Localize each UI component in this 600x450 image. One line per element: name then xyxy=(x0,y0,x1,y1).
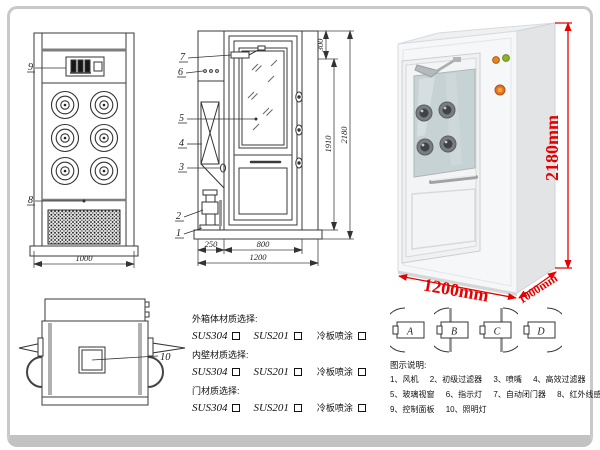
svg-text:6: 6 xyxy=(178,67,183,78)
material-checkbox[interactable] xyxy=(294,332,302,340)
legend-row: 1、风机 2、初级过滤器 3、喷嘴 4、高效过滤器 xyxy=(390,374,598,386)
legend-item: 10、照明灯 xyxy=(446,405,487,414)
nozzle-grid xyxy=(52,92,118,185)
nozzle-icon xyxy=(91,158,118,185)
dim-800: 800 xyxy=(257,239,271,249)
svg-text:5: 5 xyxy=(179,113,184,124)
photo-height-dim: 2180mm xyxy=(542,115,562,181)
legend-item: 7、自动闭门器 xyxy=(493,390,545,399)
door-option-d-icon: D xyxy=(522,302,562,358)
legend-item: 1、风机 xyxy=(390,375,418,384)
callout-10: 10 xyxy=(92,352,171,363)
door-glass-panel xyxy=(239,48,287,148)
material-section-title: 内壁材质选择: xyxy=(192,349,392,361)
top-view-drawing: 10 xyxy=(18,293,186,425)
door-assembly xyxy=(224,31,302,230)
dim-1200: 1200 xyxy=(250,252,268,262)
filter-box xyxy=(201,102,226,188)
nozzle-icon xyxy=(52,92,79,119)
dim-1910: 1910 xyxy=(323,135,333,153)
material-section-title: 外箱体材质选择: xyxy=(192,313,392,325)
indicator-lights-icon xyxy=(204,70,219,73)
material-section-title: 门材质选择: xyxy=(192,385,392,397)
legend-title: 图示说明: xyxy=(390,359,598,371)
material-checkbox[interactable] xyxy=(358,368,366,376)
material-checkbox[interactable] xyxy=(294,368,302,376)
svg-text:3: 3 xyxy=(178,162,184,173)
legend-item: 6、指示灯 xyxy=(446,390,482,399)
svg-text:2: 2 xyxy=(176,211,181,222)
material-checkbox[interactable] xyxy=(232,404,240,412)
side-view-drawing: 7 6 5 4 3 2 1 300 1910 2180 250 800 xyxy=(156,18,368,308)
material-option-label: SUS201 xyxy=(253,330,288,342)
material-checkbox[interactable] xyxy=(358,404,366,412)
air-shower-photo: 2180mm 1200mm 1000mm xyxy=(383,13,578,309)
legend-row: 5、玻璃视窗 6、指示灯 7、自动闭门器 8、红外线感应器 xyxy=(390,389,598,401)
dim-2180: 2180 xyxy=(339,126,349,144)
legend-item: 3、喷嘴 xyxy=(493,375,521,384)
front-view-drawing: 1000 9 8 xyxy=(25,30,157,272)
svg-text:D: D xyxy=(536,327,545,338)
material-option-label: SUS201 xyxy=(253,402,288,414)
front-width-dim-label: 1000 xyxy=(76,253,94,263)
svg-text:4: 4 xyxy=(179,138,184,149)
material-checkbox[interactable] xyxy=(294,404,302,412)
svg-text:1: 1 xyxy=(176,228,181,239)
door-option-b-icon: B xyxy=(434,302,474,358)
nozzle-icon xyxy=(52,158,79,185)
dim-250: 250 xyxy=(205,239,219,249)
material-option-label: SUS304 xyxy=(192,330,227,342)
material-option-label: 冷板喷涂 xyxy=(317,329,353,342)
legend-item: 8、红外线感应器 xyxy=(557,390,600,399)
svg-text:B: B xyxy=(451,327,457,338)
legend-item: 2、初级过滤器 xyxy=(430,375,482,384)
door-option-a-icon: A xyxy=(390,302,430,358)
control-panel xyxy=(66,57,104,76)
material-option-label: 冷板喷涂 xyxy=(317,401,353,414)
material-section-door: 门材质选择: SUS304 SUS201 冷板喷涂 xyxy=(192,385,392,414)
material-option-label: 冷板喷涂 xyxy=(317,365,353,378)
material-option-label: SUS304 xyxy=(192,366,227,378)
air-return-grille xyxy=(48,210,120,244)
legend-item: 5、玻璃视窗 xyxy=(390,390,434,399)
top-view-outline xyxy=(42,299,149,405)
material-option-label: SUS304 xyxy=(192,402,227,414)
legend-item: 4、高效过滤器 xyxy=(533,375,585,384)
svg-text:8: 8 xyxy=(28,195,33,206)
dim-300: 300 xyxy=(315,38,325,53)
nozzle-icon xyxy=(91,92,118,119)
legend-row: 9、控制面板 10、照明灯 xyxy=(390,404,598,416)
svg-text:10: 10 xyxy=(160,352,171,363)
material-checkbox[interactable] xyxy=(358,332,366,340)
door-option-c-icon: C xyxy=(478,302,518,358)
material-checkbox[interactable] xyxy=(232,332,240,340)
door-configuration-options: A B C D xyxy=(390,302,562,358)
material-options-panel: 外箱体材质选择: SUS304 SUS201 冷板喷涂 内壁材质选择: SUS3… xyxy=(192,313,392,421)
svg-text:C: C xyxy=(494,327,501,338)
material-checkbox[interactable] xyxy=(232,368,240,376)
legend-item: 9、控制面板 xyxy=(390,405,434,414)
svg-text:7: 7 xyxy=(180,52,186,63)
svg-text:A: A xyxy=(406,327,414,338)
callout-9: 9 xyxy=(27,62,66,73)
nozzle-icon xyxy=(52,125,79,152)
legend: 图示说明: 1、风机 2、初级过滤器 3、喷嘴 4、高效过滤器 5、玻璃视窗 6… xyxy=(390,359,598,419)
glass-hatching xyxy=(248,60,277,130)
svg-text:9: 9 xyxy=(28,62,33,73)
material-section-outer-box: 外箱体材质选择: SUS304 SUS201 冷板喷涂 xyxy=(192,313,392,342)
blower-unit xyxy=(200,190,222,230)
material-section-inner-wall: 内壁材质选择: SUS304 SUS201 冷板喷涂 xyxy=(192,349,392,378)
nozzle-icon xyxy=(91,125,118,152)
material-option-label: SUS201 xyxy=(253,366,288,378)
door-swing-arcs xyxy=(27,357,163,387)
